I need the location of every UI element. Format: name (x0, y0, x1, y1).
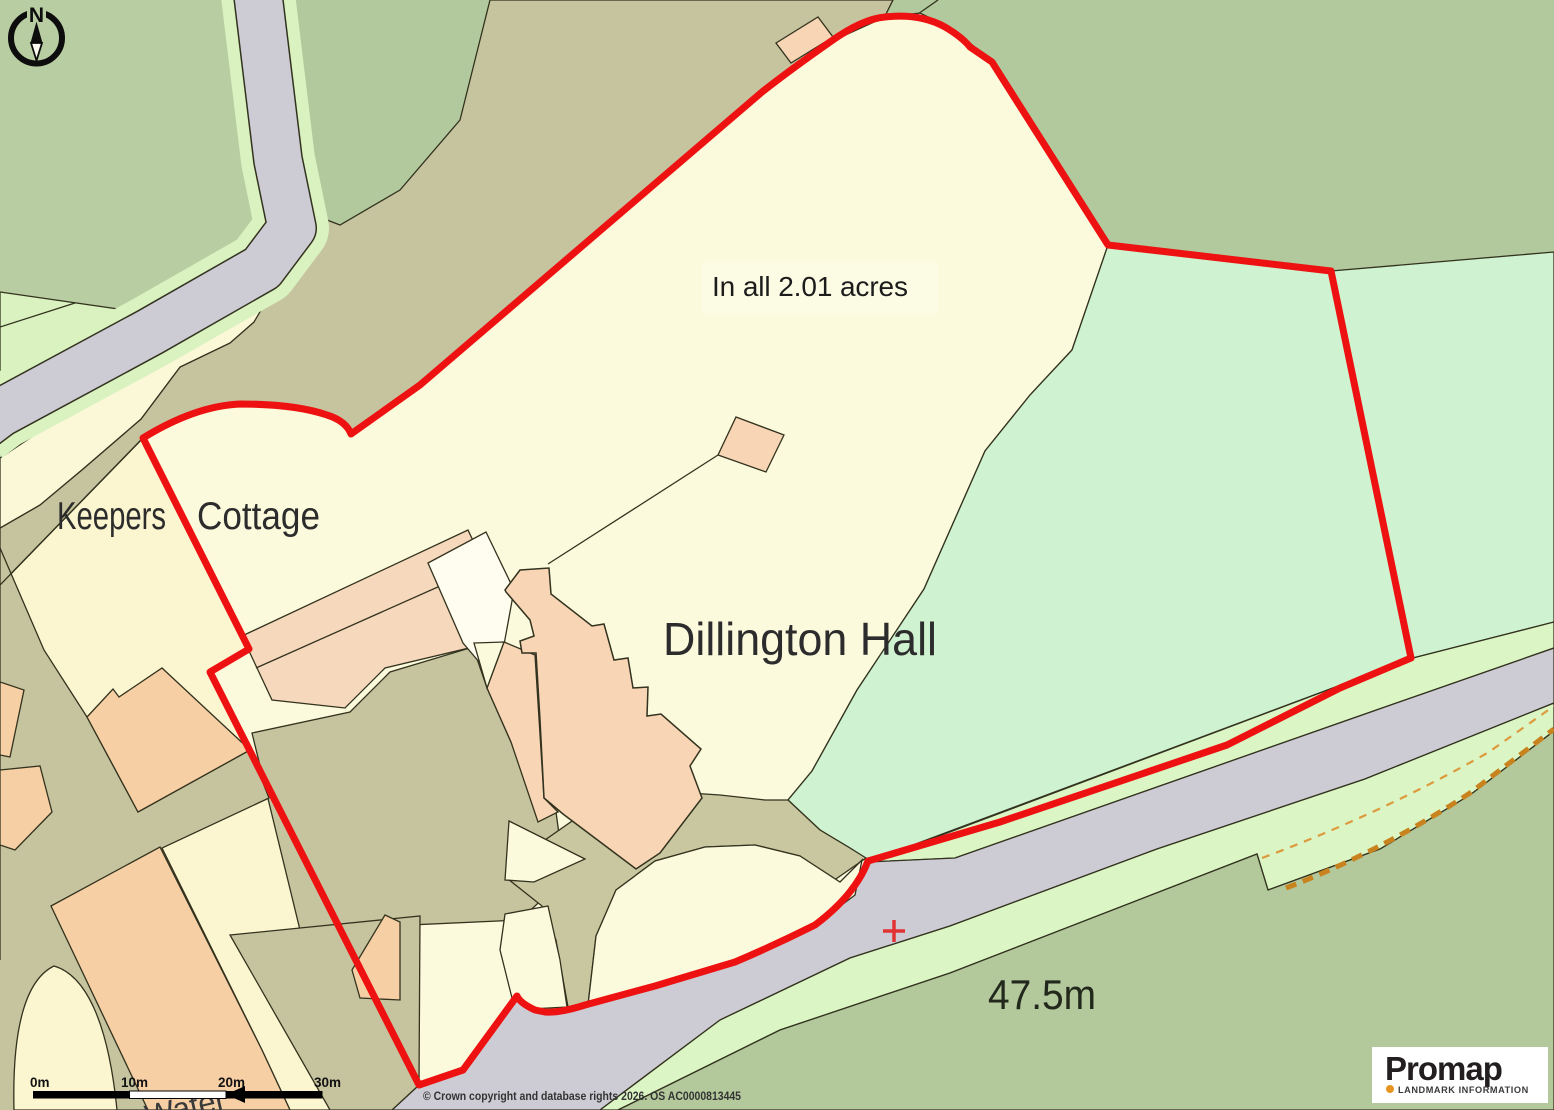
svg-text:LANDMARK INFORMATION: LANDMARK INFORMATION (1398, 1085, 1529, 1095)
svg-text:© Crown copyright and database: © Crown copyright and database rights 20… (423, 1091, 742, 1103)
svg-text:0m: 0m (30, 1075, 50, 1090)
svg-text:30m: 30m (314, 1075, 341, 1090)
svg-text:Cottage: Cottage (197, 495, 320, 538)
svg-text:10m: 10m (121, 1075, 148, 1090)
svg-text:In all 2.01 acres: In all 2.01 acres (712, 271, 908, 302)
svg-text:Dillington Hall: Dillington Hall (663, 613, 937, 665)
svg-text:Keepers: Keepers (57, 495, 166, 538)
svg-text:47.5m: 47.5m (988, 971, 1096, 1018)
svg-text:Promap: Promap (1385, 1050, 1502, 1087)
svg-text:20m: 20m (218, 1075, 245, 1090)
